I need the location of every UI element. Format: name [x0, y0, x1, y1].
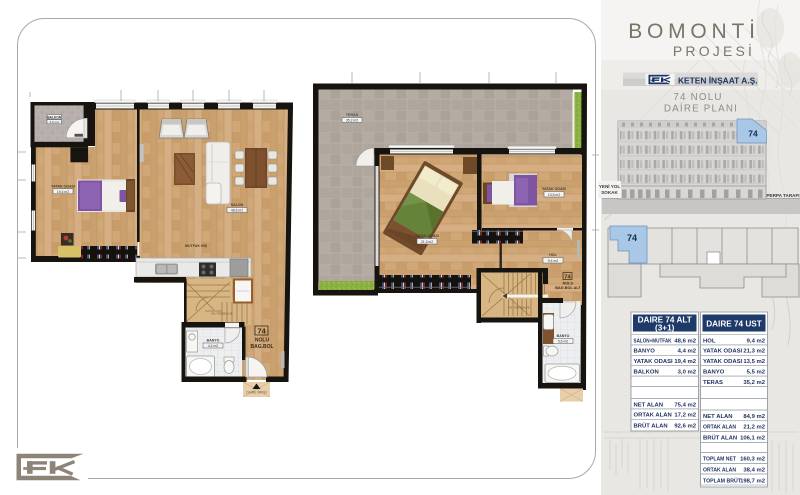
svg-text:4,4 m2: 4,4 m2 [208, 344, 218, 348]
svg-text:19,4 m2: 19,4 m2 [57, 190, 69, 194]
svg-text:84,9 m2: 84,9 m2 [743, 414, 765, 420]
svg-text:35,2 m2: 35,2 m2 [346, 119, 358, 123]
svg-text:21,3 m2: 21,3 m2 [743, 349, 765, 355]
svg-text:BAG.BOL: BAG.BOL [250, 344, 273, 350]
svg-text:4,4 m2: 4,4 m2 [678, 349, 697, 355]
svg-text:NET ALAN: NET ALAN [703, 414, 733, 420]
svg-text:HOL: HOL [703, 338, 716, 344]
svg-text:BRÜT ALAN: BRÜT ALAN [703, 435, 737, 442]
svg-text:BANYO: BANYO [207, 339, 220, 343]
svg-text:ORTAK ALAN: ORTAK ALAN [703, 425, 736, 431]
svg-text:74: 74 [748, 129, 758, 139]
svg-text:NOLU: NOLU [255, 338, 270, 344]
svg-text:TOPLAM BRÜT: TOPLAM BRÜT [703, 477, 741, 484]
svg-text:NET ALAN: NET ALAN [634, 402, 664, 408]
svg-text:AS.YÜKSEKLİK: AS.YÜKSEKLİK [211, 311, 233, 316]
svg-text:DAİRE PLANI: DAİRE PLANI [664, 104, 738, 115]
svg-text:BANYO: BANYO [557, 334, 570, 338]
svg-text:PROJESİ: PROJESİ [673, 42, 755, 59]
svg-text:PERPA TARAFI: PERPA TARAFI [766, 193, 799, 198]
svg-text:YATAK ODASI: YATAK ODASI [703, 349, 743, 355]
svg-text:92,6 m2: 92,6 m2 [674, 424, 696, 430]
svg-text:48,6 m2: 48,6 m2 [231, 209, 243, 213]
svg-text:YENİ YOL: YENİ YOL [599, 183, 621, 189]
svg-text:5,5 m2: 5,5 m2 [558, 340, 568, 344]
svg-text:38,4 m2: 38,4 m2 [743, 467, 765, 473]
svg-text:BALKON: BALKON [47, 115, 61, 119]
svg-text:KETEN İNŞAAT A.Ş.: KETEN İNŞAAT A.Ş. [678, 76, 758, 86]
svg-text:BRÜT ALAN: BRÜT ALAN [634, 423, 668, 430]
svg-text:BANYO: BANYO [634, 349, 656, 355]
svg-text:TERAS: TERAS [346, 113, 359, 117]
svg-text:AS.YÜKSEKLİK: AS.YÜKSEKLİK [508, 305, 530, 310]
svg-text:YATAK ODASI: YATAK ODASI [51, 185, 75, 189]
svg-text:3,0 m2: 3,0 m2 [49, 120, 59, 124]
svg-text:YATAK ODASI: YATAK ODASI [542, 187, 566, 191]
svg-text:ORTAK ALAN: ORTAK ALAN [703, 467, 736, 473]
svg-text:BAG.BOL ALT: BAG.BOL ALT [555, 286, 581, 290]
svg-text:DAIRE 74 UST: DAIRE 74 UST [706, 320, 762, 329]
svg-text:9,4 m2: 9,4 m2 [747, 338, 766, 344]
svg-text:(3+1): (3+1) [655, 324, 675, 333]
svg-text:74: 74 [564, 274, 571, 280]
svg-text:TERAS: TERAS [703, 380, 723, 386]
svg-text:SALON+MUTFAK: SALON+MUTFAK [634, 338, 673, 344]
svg-text:19,4 m2: 19,4 m2 [674, 359, 696, 365]
svg-text:106,1 m2: 106,1 m2 [740, 436, 766, 442]
svg-text:HOL: HOL [549, 253, 557, 257]
svg-text:21,3 m2: 21,3 m2 [421, 240, 433, 244]
svg-text:35,2 m2: 35,2 m2 [743, 380, 765, 386]
svg-text:198,7 m2: 198,7 m2 [740, 478, 766, 484]
svg-text:74 NOLU: 74 NOLU [673, 92, 722, 103]
svg-text:13,5 m2: 13,5 m2 [548, 193, 560, 197]
svg-text:DAİRE GİRİŞİ: DAİRE GİRİŞİ [246, 390, 266, 395]
svg-text:17,2 m2: 17,2 m2 [674, 413, 696, 419]
svg-text:74: 74 [627, 233, 637, 243]
svg-text:YATAK ODASI: YATAK ODASI [415, 234, 439, 238]
svg-text:160,3 m2: 160,3 m2 [740, 457, 766, 463]
svg-text:9,4 m2: 9,4 m2 [548, 259, 558, 263]
svg-text:YATAK ODASI: YATAK ODASI [634, 359, 674, 365]
svg-text:5,5 m2: 5,5 m2 [747, 370, 766, 376]
svg-text:48,6 m2: 48,6 m2 [674, 338, 696, 344]
svg-text:SALON: SALON [231, 203, 244, 207]
svg-text:75,4 m2: 75,4 m2 [674, 402, 696, 408]
svg-text:NOLU: NOLU [563, 282, 574, 286]
svg-text:BOMONTİ: BOMONTİ [628, 20, 760, 43]
svg-text:BANYO: BANYO [703, 370, 725, 376]
svg-text:MUTFAK NİŞ: MUTFAK NİŞ [185, 244, 208, 248]
svg-text:BALKON: BALKON [634, 370, 659, 376]
svg-text:74: 74 [257, 327, 266, 336]
svg-text:21,2 m2: 21,2 m2 [743, 425, 765, 431]
svg-text:13,5 m2: 13,5 m2 [743, 359, 765, 365]
svg-text:3,0 m2: 3,0 m2 [678, 370, 697, 376]
svg-text:ORTAK ALAN: ORTAK ALAN [634, 413, 672, 419]
svg-text:SOKAK: SOKAK [601, 190, 618, 195]
svg-text:TOPLAM NET: TOPLAM NET [703, 457, 736, 463]
svg-text:YATAK ODASI: YATAK ODASI [703, 359, 743, 365]
